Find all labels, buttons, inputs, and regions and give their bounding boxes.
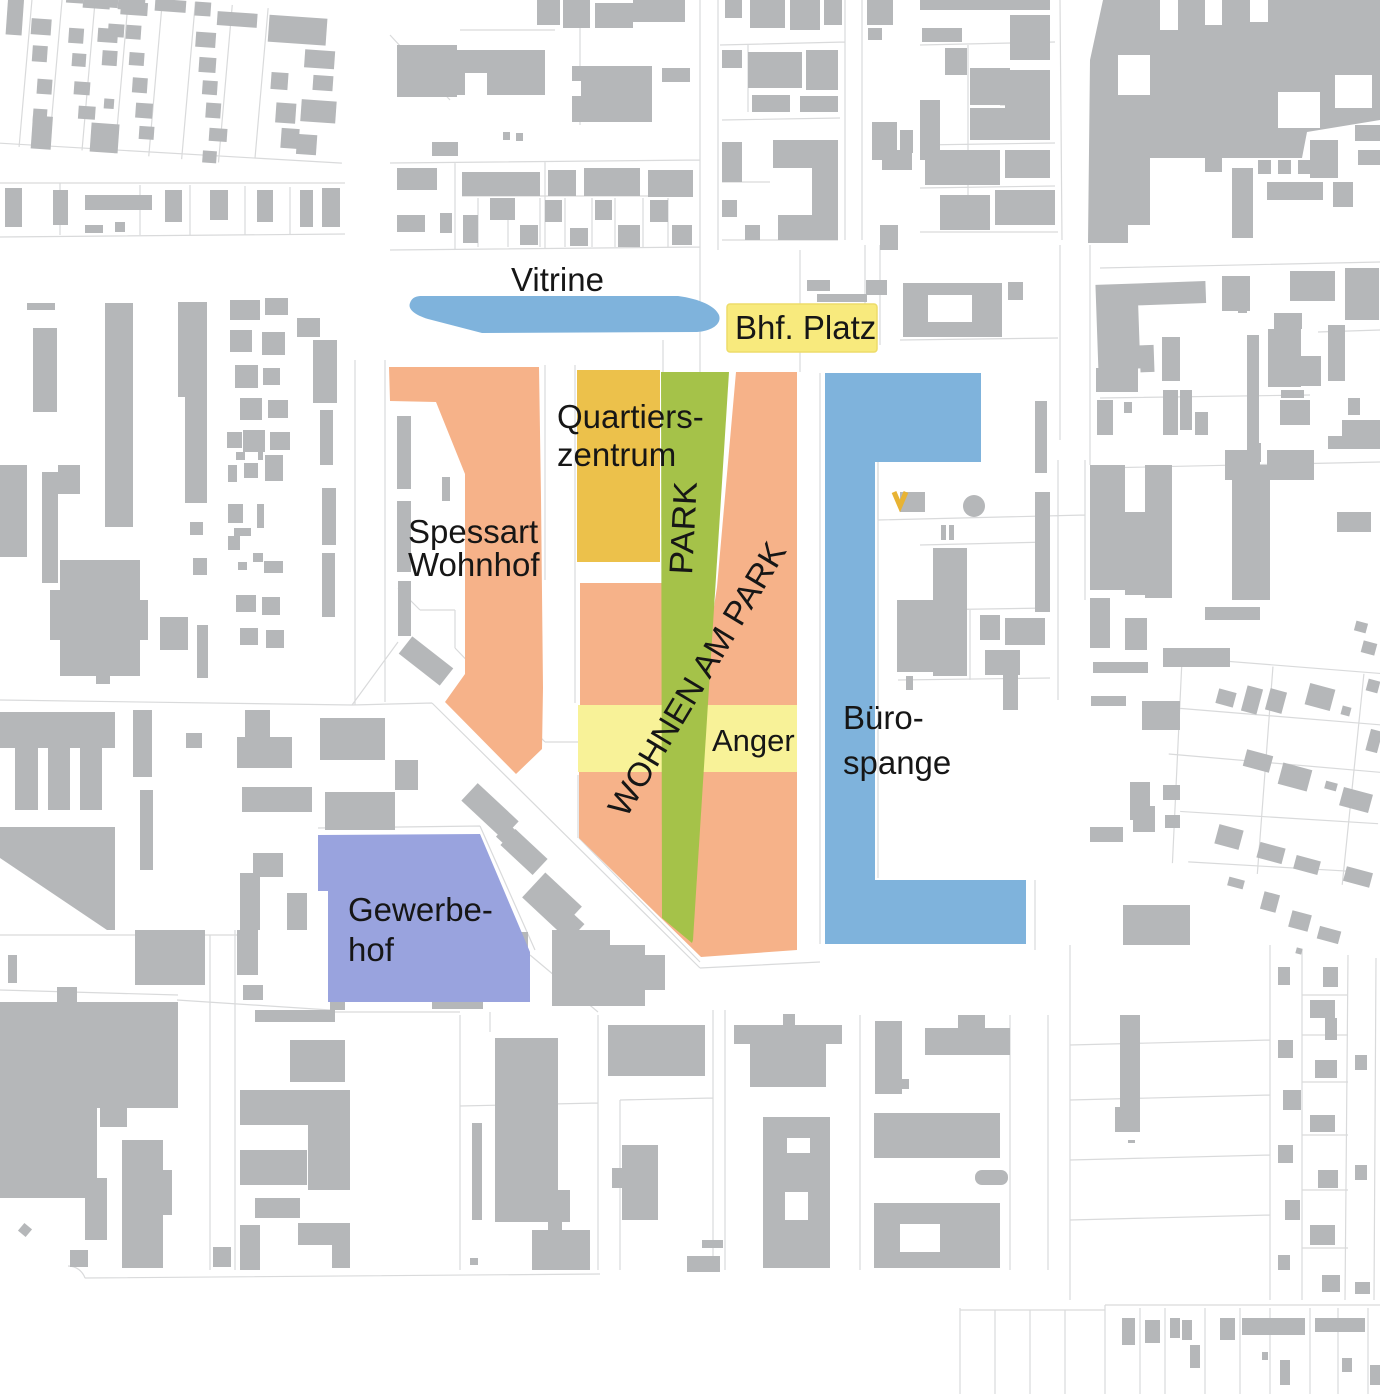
svg-text:Wohnhof: Wohnhof [408, 546, 540, 583]
svg-text:spange: spange [843, 744, 951, 781]
svg-text:Quartiers-: Quartiers- [557, 398, 704, 435]
svg-text:Vitrine: Vitrine [511, 261, 604, 298]
svg-text:PARK: PARK [662, 481, 704, 576]
svg-text:Spessart: Spessart [408, 513, 538, 550]
svg-text:hof: hof [348, 931, 395, 968]
svg-text:Büro-: Büro- [843, 699, 924, 736]
svg-text:Gewerbe-: Gewerbe- [348, 891, 493, 928]
svg-text:Bhf. Platz: Bhf. Platz [735, 309, 876, 346]
svg-text:Anger: Anger [712, 723, 795, 758]
svg-text:zentrum: zentrum [557, 436, 676, 473]
